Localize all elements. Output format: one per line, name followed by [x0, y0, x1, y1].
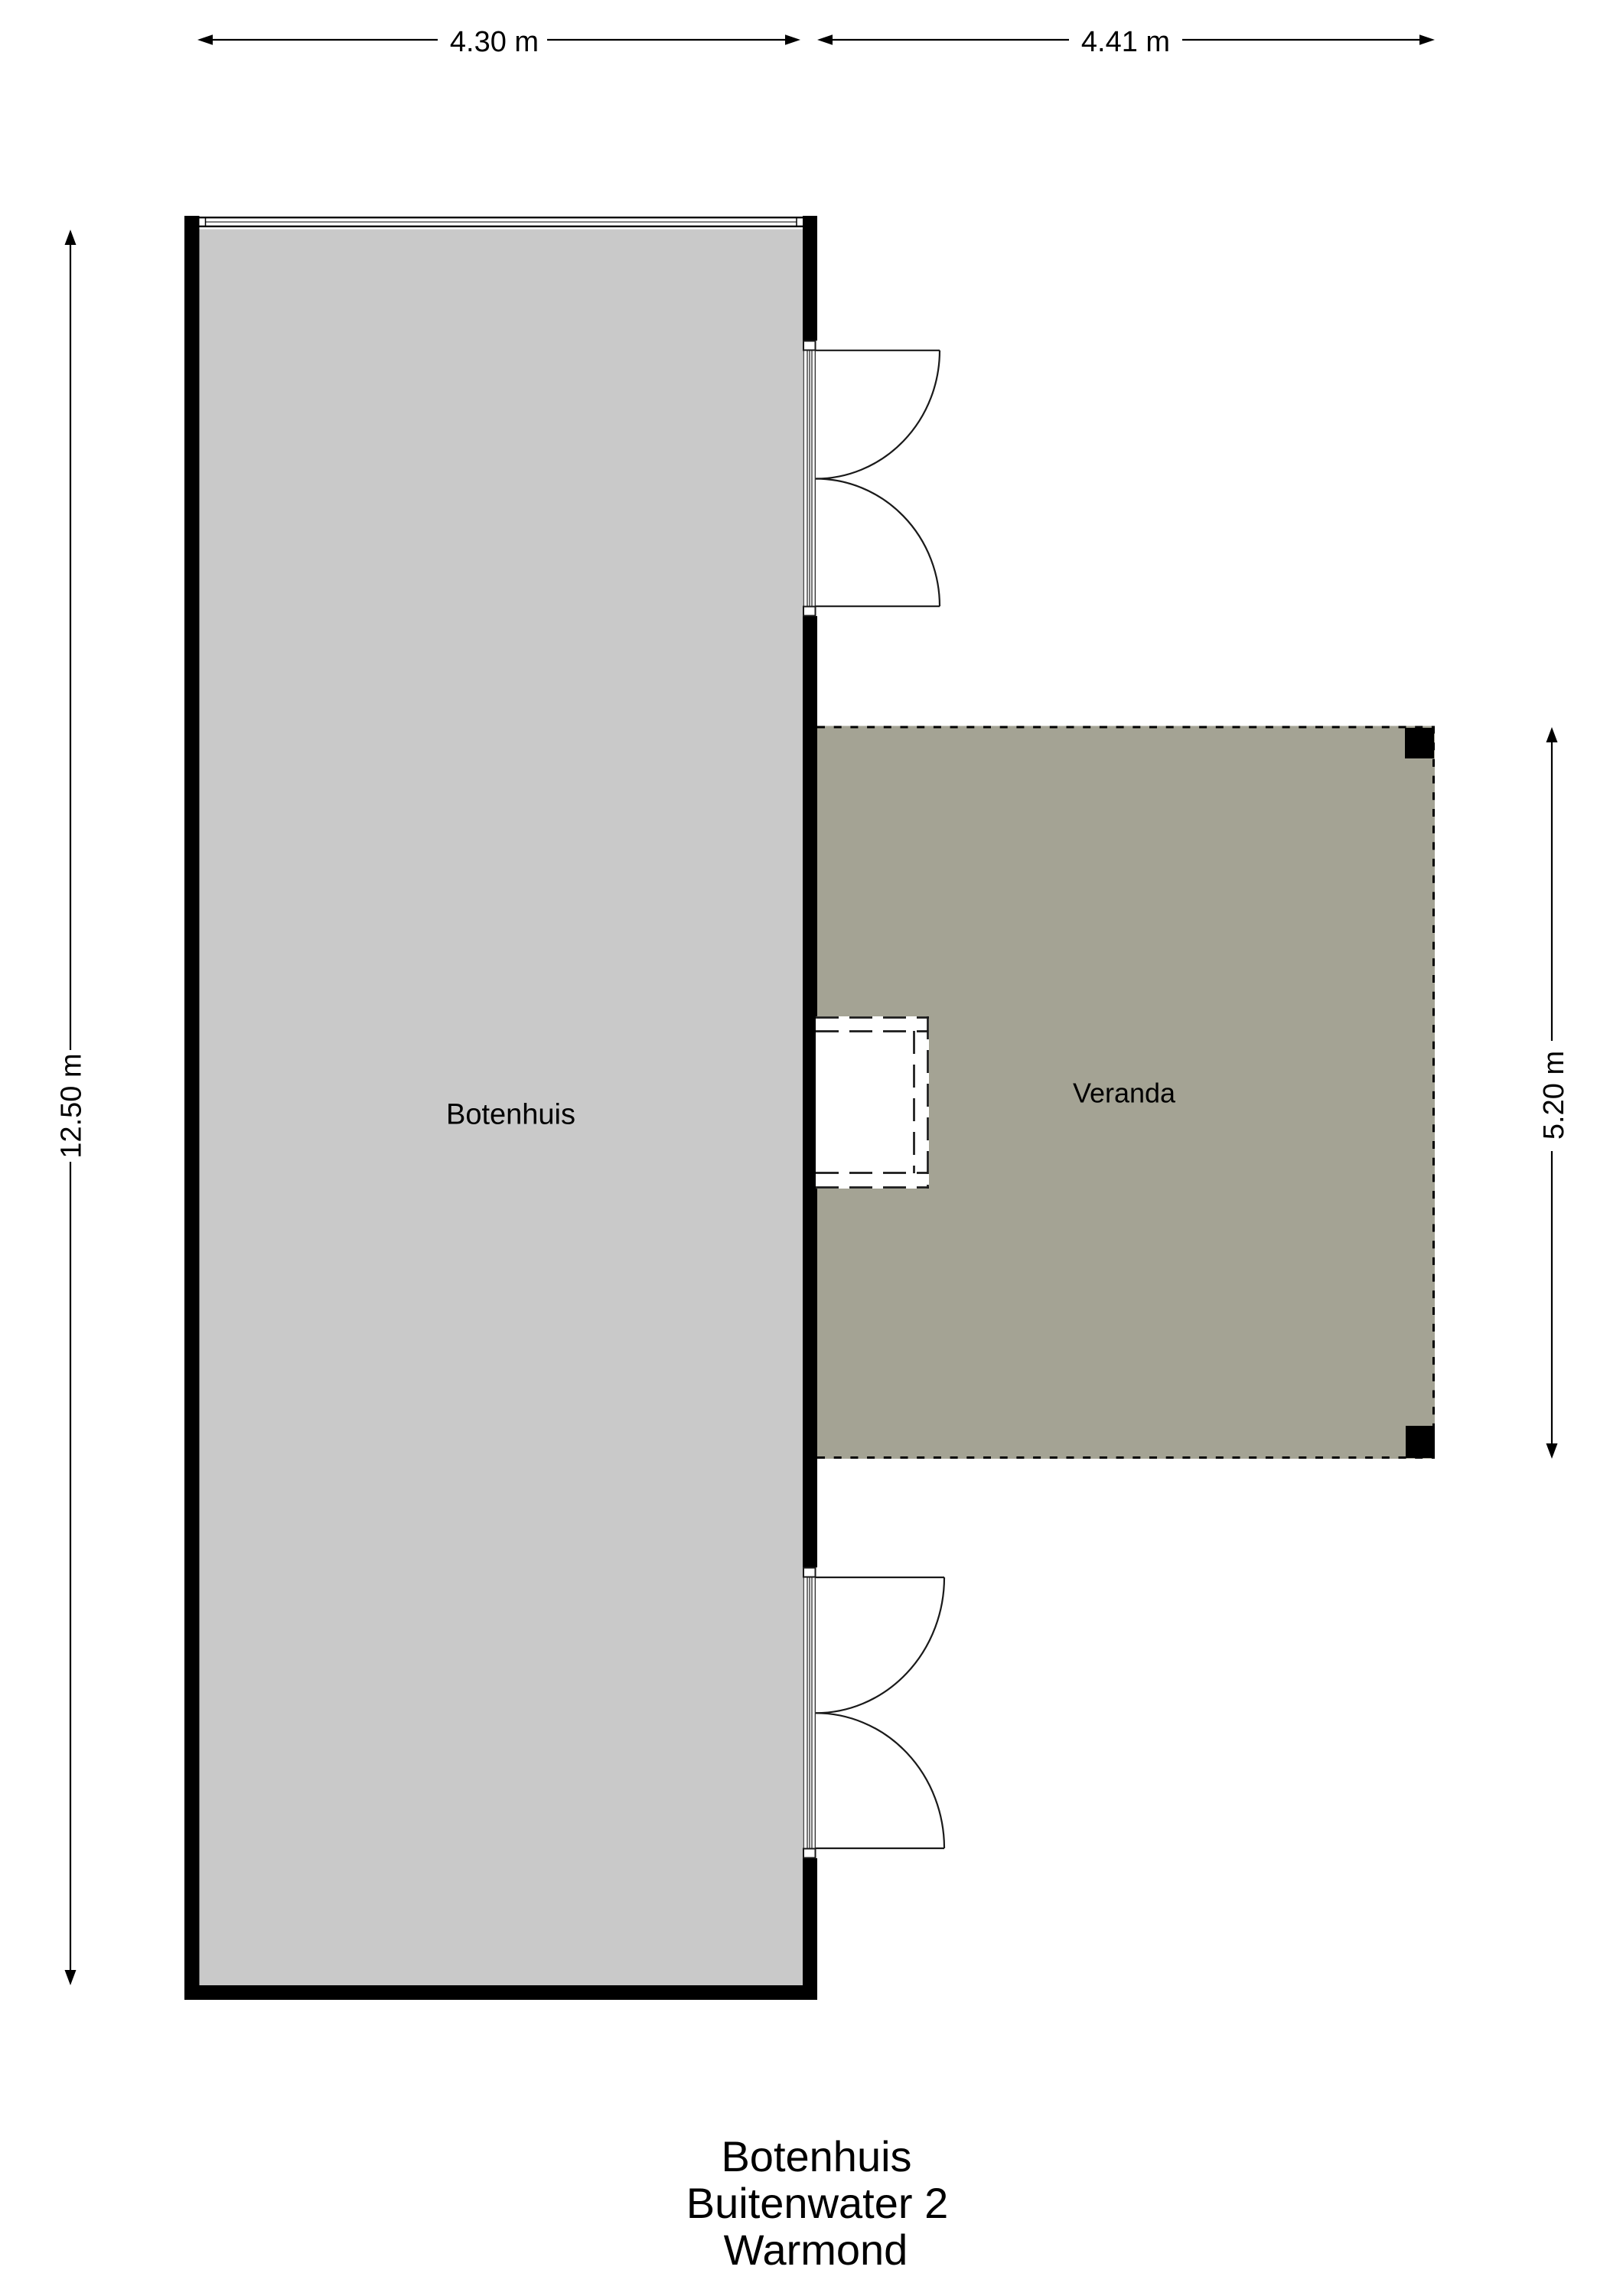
- svg-text:Veranda: Veranda: [1073, 1078, 1176, 1109]
- svg-text:Botenhuis: Botenhuis: [446, 1099, 575, 1131]
- svg-text:12.50 m: 12.50 m: [56, 1053, 88, 1158]
- svg-text:5.20 m: 5.20 m: [1538, 1051, 1570, 1140]
- svg-text:4.30 m: 4.30 m: [450, 26, 539, 58]
- svg-text:Buitenwater 2: Buitenwater 2: [686, 2179, 948, 2227]
- svg-text:Botenhuis: Botenhuis: [721, 2132, 911, 2180]
- svg-text:Warmond: Warmond: [724, 2226, 908, 2274]
- svg-text:4.41 m: 4.41 m: [1081, 26, 1170, 58]
